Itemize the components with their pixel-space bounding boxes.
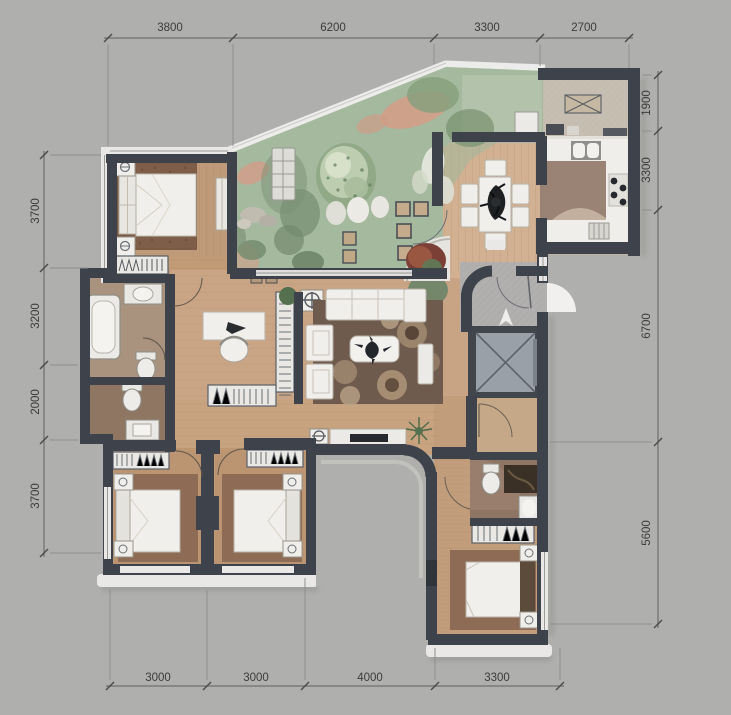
svg-text:3800: 3800	[157, 22, 183, 34]
svg-text:4000: 4000	[357, 672, 383, 684]
svg-text:3700: 3700	[30, 198, 42, 224]
svg-text:3000: 3000	[145, 672, 171, 684]
svg-text:2700: 2700	[571, 22, 597, 34]
svg-text:2000: 2000	[30, 389, 42, 415]
svg-text:3200: 3200	[30, 303, 42, 329]
svg-text:3700: 3700	[30, 483, 42, 509]
svg-text:3300: 3300	[484, 672, 510, 684]
svg-text:3300: 3300	[474, 22, 500, 34]
svg-text:6200: 6200	[320, 22, 346, 34]
svg-text:1900: 1900	[641, 90, 653, 116]
svg-text:3300: 3300	[641, 157, 653, 183]
svg-text:5600: 5600	[641, 520, 653, 546]
svg-text:3000: 3000	[243, 672, 269, 684]
svg-text:6700: 6700	[641, 313, 653, 339]
